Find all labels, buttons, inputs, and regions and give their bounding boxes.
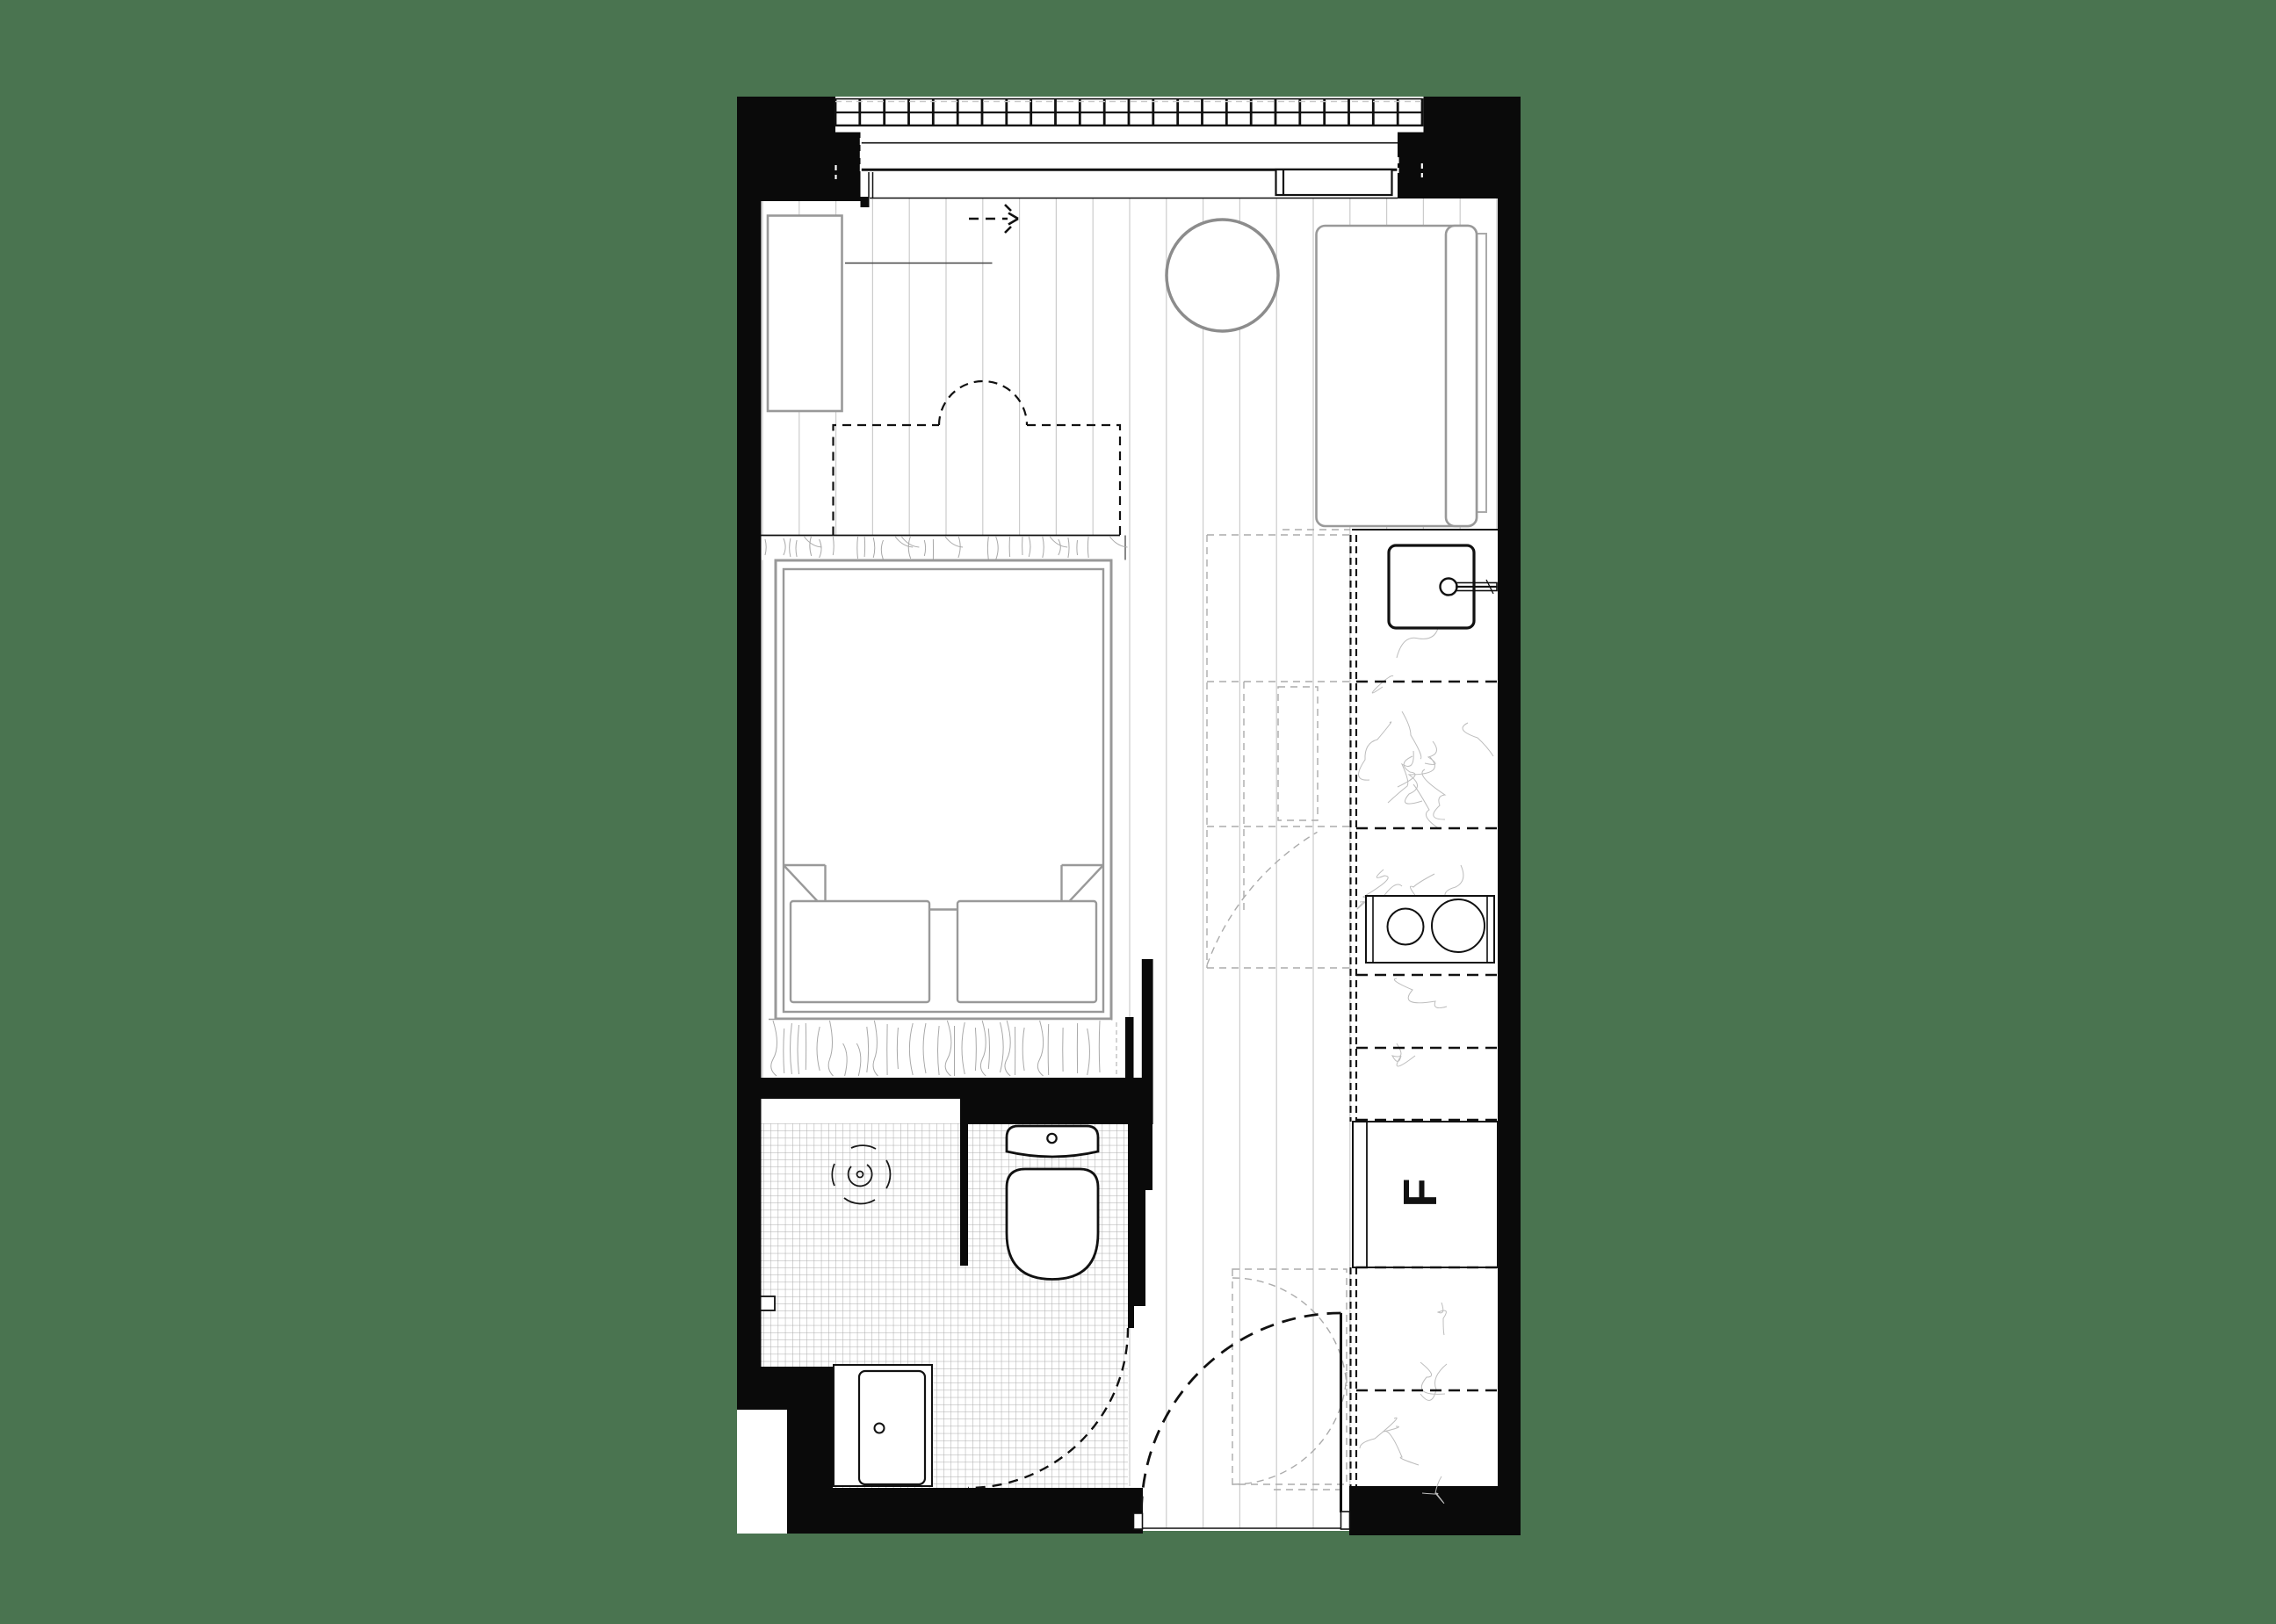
svg-text:F: F bbox=[1394, 1179, 1447, 1208]
